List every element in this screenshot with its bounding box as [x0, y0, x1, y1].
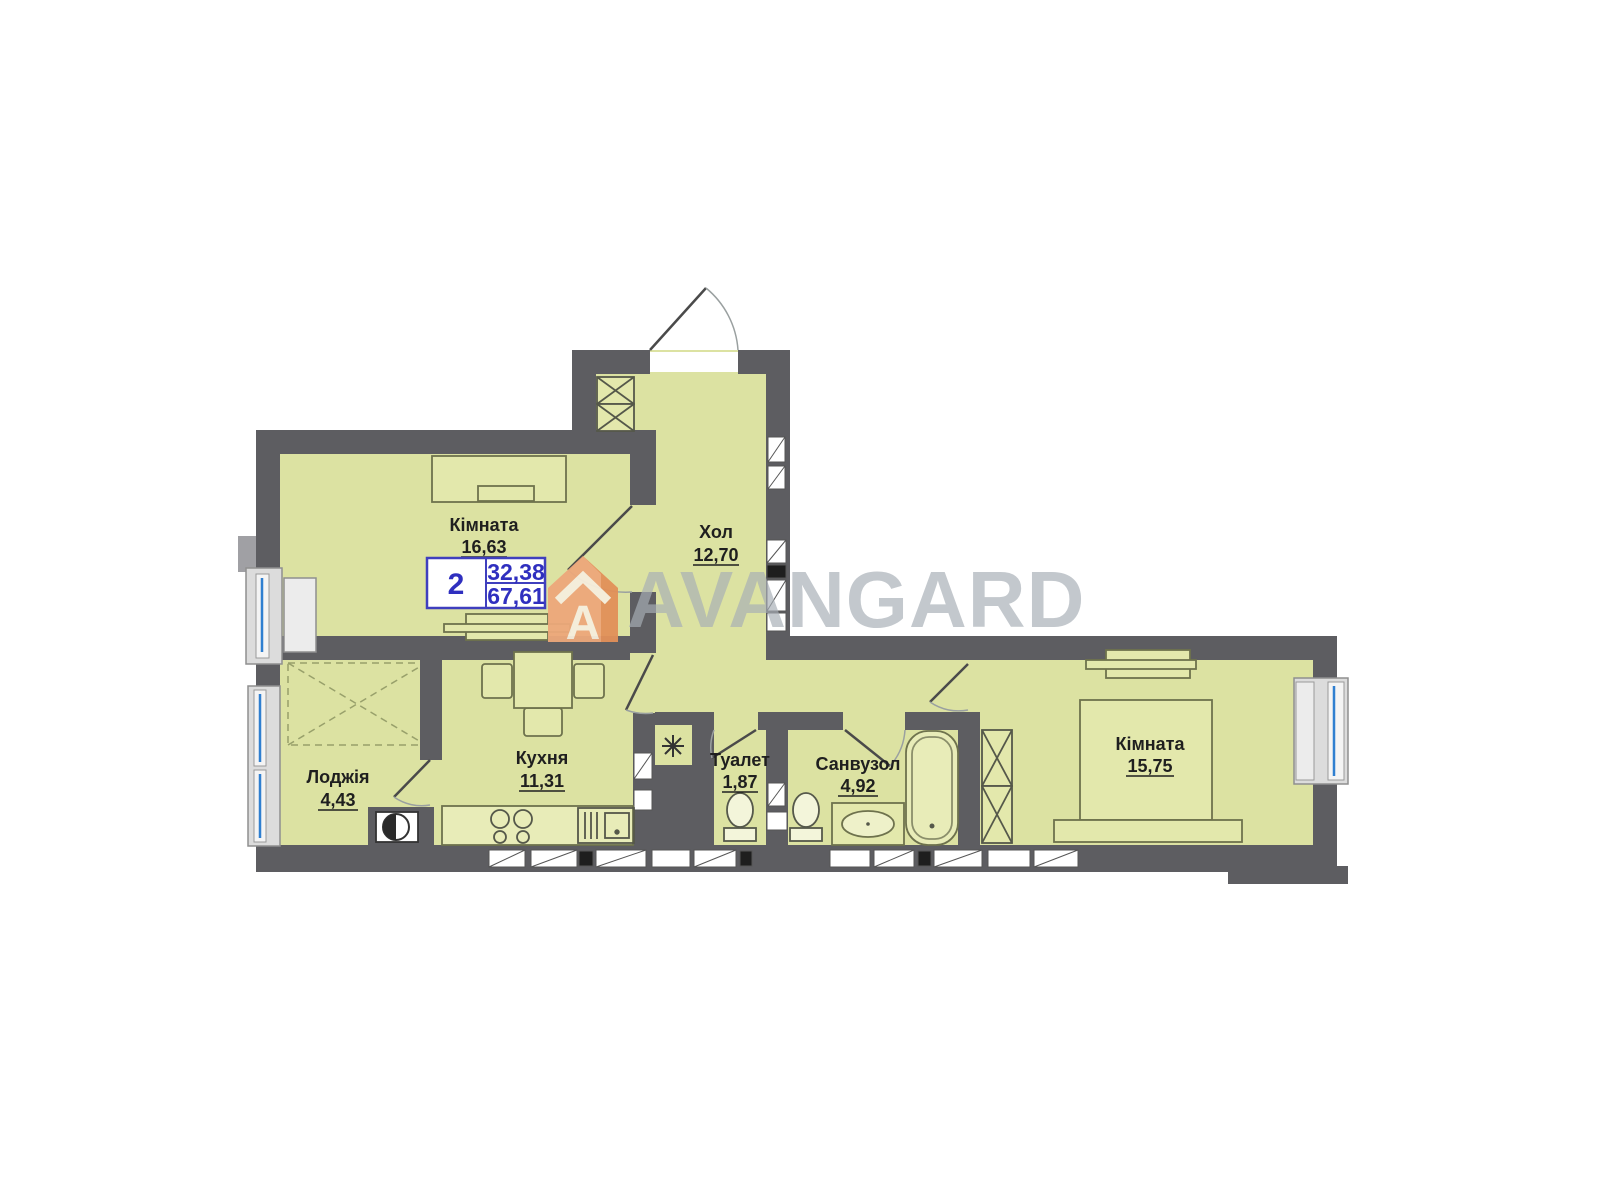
badge-total-area: 67,61: [487, 583, 545, 609]
label-kitchen: Кухня: [516, 748, 569, 768]
window-loggia: [248, 686, 280, 846]
apartment-info-badge: 2 32,38 67,61: [427, 558, 545, 609]
area-bathroom: 4,92: [840, 776, 875, 796]
label-bathroom: Санвузол: [816, 754, 901, 774]
area-toilet: 1,87: [722, 772, 757, 792]
floor-plan: A AVANGARD Кімната 16,63 Хол 12,70 Кухня…: [0, 0, 1600, 1200]
area-loggia: 4,43: [320, 790, 355, 810]
label-toilet: Туалет: [710, 750, 770, 770]
wardrobe-icon-2: [982, 730, 1012, 843]
label-livingroom-2: Кімната: [1115, 734, 1185, 754]
radiator-icon: [1296, 682, 1314, 780]
window-livingroom-1: [246, 568, 316, 664]
floor-plan-canvas: A AVANGARD Кімната 16,63 Хол 12,70 Кухня…: [0, 0, 1600, 1200]
toilet-icon-2: [790, 793, 822, 841]
area-kitchen: 11,31: [520, 771, 564, 791]
shaft-bath-wall: [767, 783, 787, 830]
brand-wordmark: AVANGARD: [627, 555, 1085, 644]
area-livingroom-1: 16,63: [461, 537, 506, 557]
bathtub-icon: [906, 731, 958, 845]
brand-watermark: A AVANGARD: [548, 555, 1085, 650]
boiler-icon: [662, 735, 684, 757]
bathroom-sink-icon: [832, 803, 904, 845]
badge-room-count: 2: [448, 568, 465, 601]
label-hall: Хол: [699, 522, 733, 542]
window-livingroom-2: [1294, 678, 1348, 784]
brand-logo-letter: A: [566, 597, 601, 650]
dresser-icon: [432, 456, 566, 502]
room-region-corridor: [656, 660, 958, 712]
label-livingroom-1: Кімната: [449, 515, 519, 535]
label-loggia: Лоджія: [306, 767, 369, 787]
toilet-icon: [724, 793, 756, 841]
area-livingroom-2: 15,75: [1127, 756, 1172, 776]
area-hall: 12,70: [693, 545, 738, 565]
wardrobe-icon: [597, 377, 634, 431]
radiator-icon: [284, 578, 316, 652]
entrance-door: [650, 288, 738, 350]
washing-machine-icon: [376, 812, 418, 842]
entrance-threshold: [650, 352, 738, 372]
badge-living-area: 32,38: [487, 559, 545, 585]
